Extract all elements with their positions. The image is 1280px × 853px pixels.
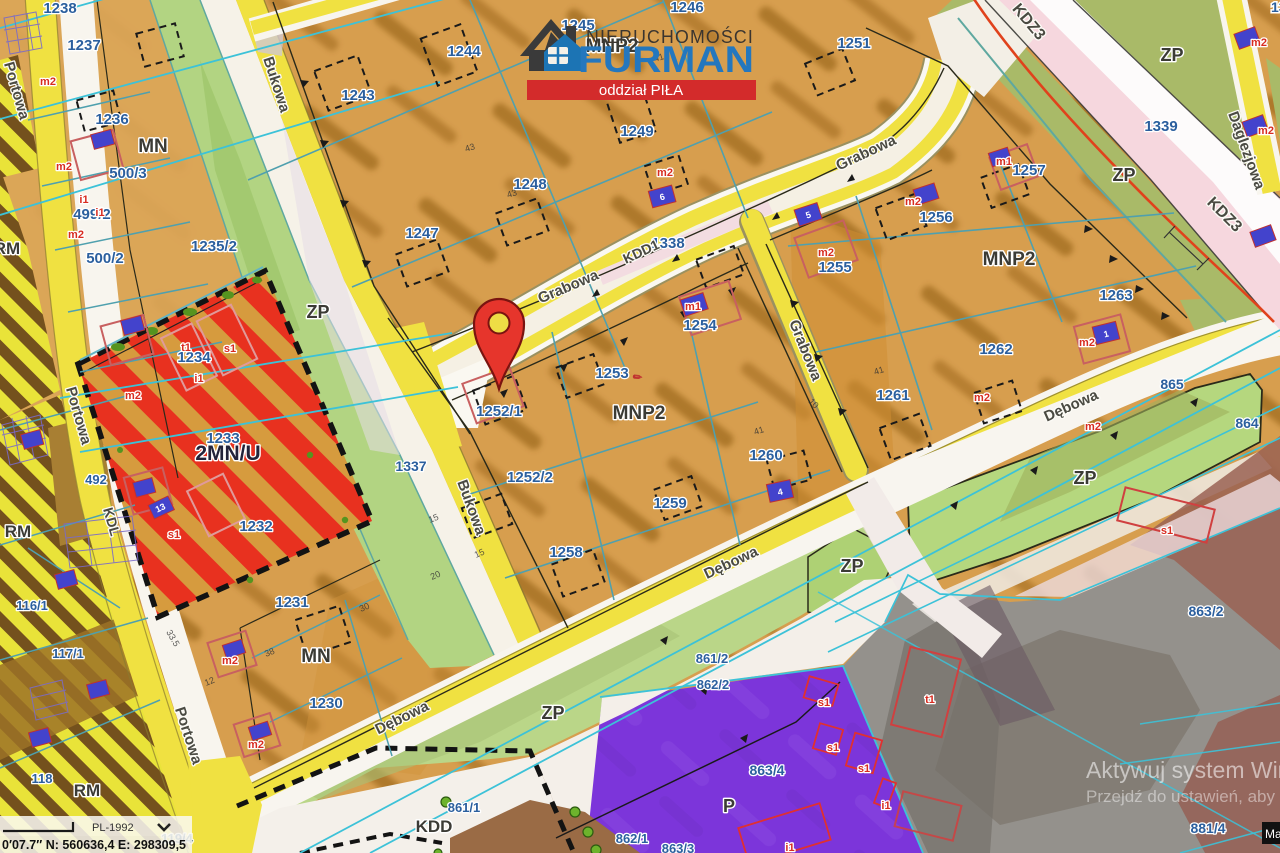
svg-text:130: 130	[1271, 0, 1280, 15]
svg-text:861/1: 861/1	[448, 800, 481, 815]
svg-text:Ma: Ma	[1265, 827, 1280, 841]
svg-text:1255: 1255	[818, 259, 851, 276]
svg-text:m2: m2	[1258, 125, 1274, 137]
svg-text:m1: m1	[685, 301, 701, 313]
svg-text:ZP: ZP	[306, 302, 329, 322]
svg-text:t1: t1	[925, 694, 935, 706]
svg-text:s1: s1	[858, 763, 870, 775]
svg-text:Aktywuj system Wind: Aktywuj system Wind	[1086, 757, 1280, 783]
svg-text:m2: m2	[818, 247, 834, 259]
svg-text:ZP: ZP	[541, 703, 564, 723]
svg-text:1243: 1243	[341, 87, 374, 104]
svg-text:MN: MN	[301, 646, 331, 667]
svg-text:1249: 1249	[620, 123, 653, 140]
svg-text:1339: 1339	[1144, 118, 1177, 135]
svg-text:117/1: 117/1	[52, 646, 84, 661]
svg-text:1258: 1258	[549, 544, 582, 561]
svg-text:1337: 1337	[395, 458, 426, 474]
svg-text:1252/1: 1252/1	[476, 403, 522, 420]
svg-text:492: 492	[85, 472, 107, 487]
svg-text:1237: 1237	[67, 37, 100, 54]
svg-text:1251: 1251	[837, 35, 870, 52]
svg-text:s1: s1	[168, 529, 180, 541]
svg-text:m2: m2	[1251, 37, 1267, 49]
svg-text:MNP2: MNP2	[983, 249, 1036, 270]
svg-text:0′07.7″ N: 560636,4 E: 29830: 0′07.7″ N: 560636,4 E: 298309,5	[2, 837, 186, 852]
svg-text:RM: RM	[0, 239, 20, 258]
svg-text:863/4: 863/4	[749, 762, 784, 778]
svg-text:FURMAN: FURMAN	[578, 39, 754, 80]
svg-text:1256: 1256	[919, 209, 952, 226]
svg-text:1231: 1231	[275, 594, 308, 611]
svg-text:865: 865	[1160, 376, 1184, 392]
svg-text:m1: m1	[996, 156, 1012, 168]
svg-text:i1: i1	[95, 207, 104, 219]
svg-text:863/3: 863/3	[662, 841, 695, 853]
svg-text:s1: s1	[224, 343, 236, 355]
svg-text:1253: 1253	[595, 365, 628, 382]
svg-text:500/3: 500/3	[109, 165, 147, 182]
svg-text:1263: 1263	[1099, 287, 1132, 304]
svg-text:116/1: 116/1	[16, 598, 48, 613]
svg-text:m2: m2	[1085, 421, 1101, 433]
svg-text:MN: MN	[138, 136, 168, 157]
svg-text:P: P	[723, 796, 735, 816]
svg-text:m2: m2	[1079, 337, 1095, 349]
svg-text:1238: 1238	[43, 0, 76, 17]
svg-text:m2: m2	[68, 229, 84, 241]
svg-text:1230: 1230	[309, 695, 342, 712]
svg-text:1246: 1246	[670, 0, 703, 16]
svg-text:1259: 1259	[653, 495, 686, 512]
svg-text:m2: m2	[905, 196, 921, 208]
svg-text:1248: 1248	[513, 176, 546, 193]
svg-text:862/1: 862/1	[616, 831, 649, 846]
svg-text:1236: 1236	[95, 111, 128, 128]
svg-text:i1: i1	[79, 194, 88, 206]
svg-text:KDD: KDD	[416, 817, 453, 836]
svg-text:ZP: ZP	[1073, 468, 1096, 488]
svg-text:1261: 1261	[876, 387, 909, 404]
svg-text:m2: m2	[222, 655, 238, 667]
svg-text:m2: m2	[657, 167, 673, 179]
svg-text:2MN/U: 2MN/U	[195, 442, 260, 465]
svg-text:499/2: 499/2	[73, 206, 111, 223]
svg-text:1257: 1257	[1012, 162, 1045, 179]
svg-text:ZP: ZP	[840, 556, 863, 576]
svg-text:RM: RM	[74, 781, 100, 800]
svg-text:1262: 1262	[979, 341, 1012, 358]
svg-text:1260: 1260	[749, 447, 782, 464]
svg-text:oddział PIŁA: oddział PIŁA	[599, 82, 683, 99]
svg-text:863/2: 863/2	[1188, 603, 1223, 619]
svg-text:RM: RM	[5, 522, 31, 541]
svg-text:s1: s1	[1161, 525, 1173, 537]
svg-text:881/4: 881/4	[1190, 820, 1225, 836]
svg-text:1252/2: 1252/2	[507, 469, 553, 486]
svg-text:i1: i1	[881, 800, 890, 812]
svg-text:1235/2: 1235/2	[191, 238, 237, 255]
svg-text:i1: i1	[194, 373, 203, 385]
svg-text:500/2: 500/2	[86, 250, 124, 267]
svg-text:t1: t1	[181, 342, 191, 354]
svg-text:m2: m2	[40, 76, 56, 88]
svg-text:MNP2: MNP2	[613, 403, 666, 424]
svg-text:1254: 1254	[683, 317, 717, 334]
svg-text:PL-1992: PL-1992	[92, 822, 134, 834]
svg-text:862/2: 862/2	[697, 677, 730, 692]
svg-text:1244: 1244	[447, 43, 481, 60]
svg-text:864: 864	[1235, 415, 1259, 431]
svg-text:ZP: ZP	[1160, 45, 1183, 65]
svg-text:i1: i1	[785, 842, 794, 853]
svg-text:m2: m2	[125, 390, 141, 402]
svg-text:ZP: ZP	[1112, 165, 1135, 185]
svg-text:m2: m2	[56, 161, 72, 173]
svg-text:s1: s1	[827, 742, 839, 754]
svg-text:s1: s1	[818, 697, 830, 709]
svg-text:118: 118	[32, 771, 53, 786]
svg-text:1247: 1247	[405, 225, 438, 242]
svg-text:Przejdź do ustawień, aby ak: Przejdź do ustawień, aby ak	[1086, 787, 1280, 806]
svg-text:m2: m2	[974, 392, 990, 404]
svg-text:m2: m2	[248, 739, 264, 751]
svg-text:1232: 1232	[239, 518, 272, 535]
svg-text:861/2: 861/2	[696, 651, 729, 666]
